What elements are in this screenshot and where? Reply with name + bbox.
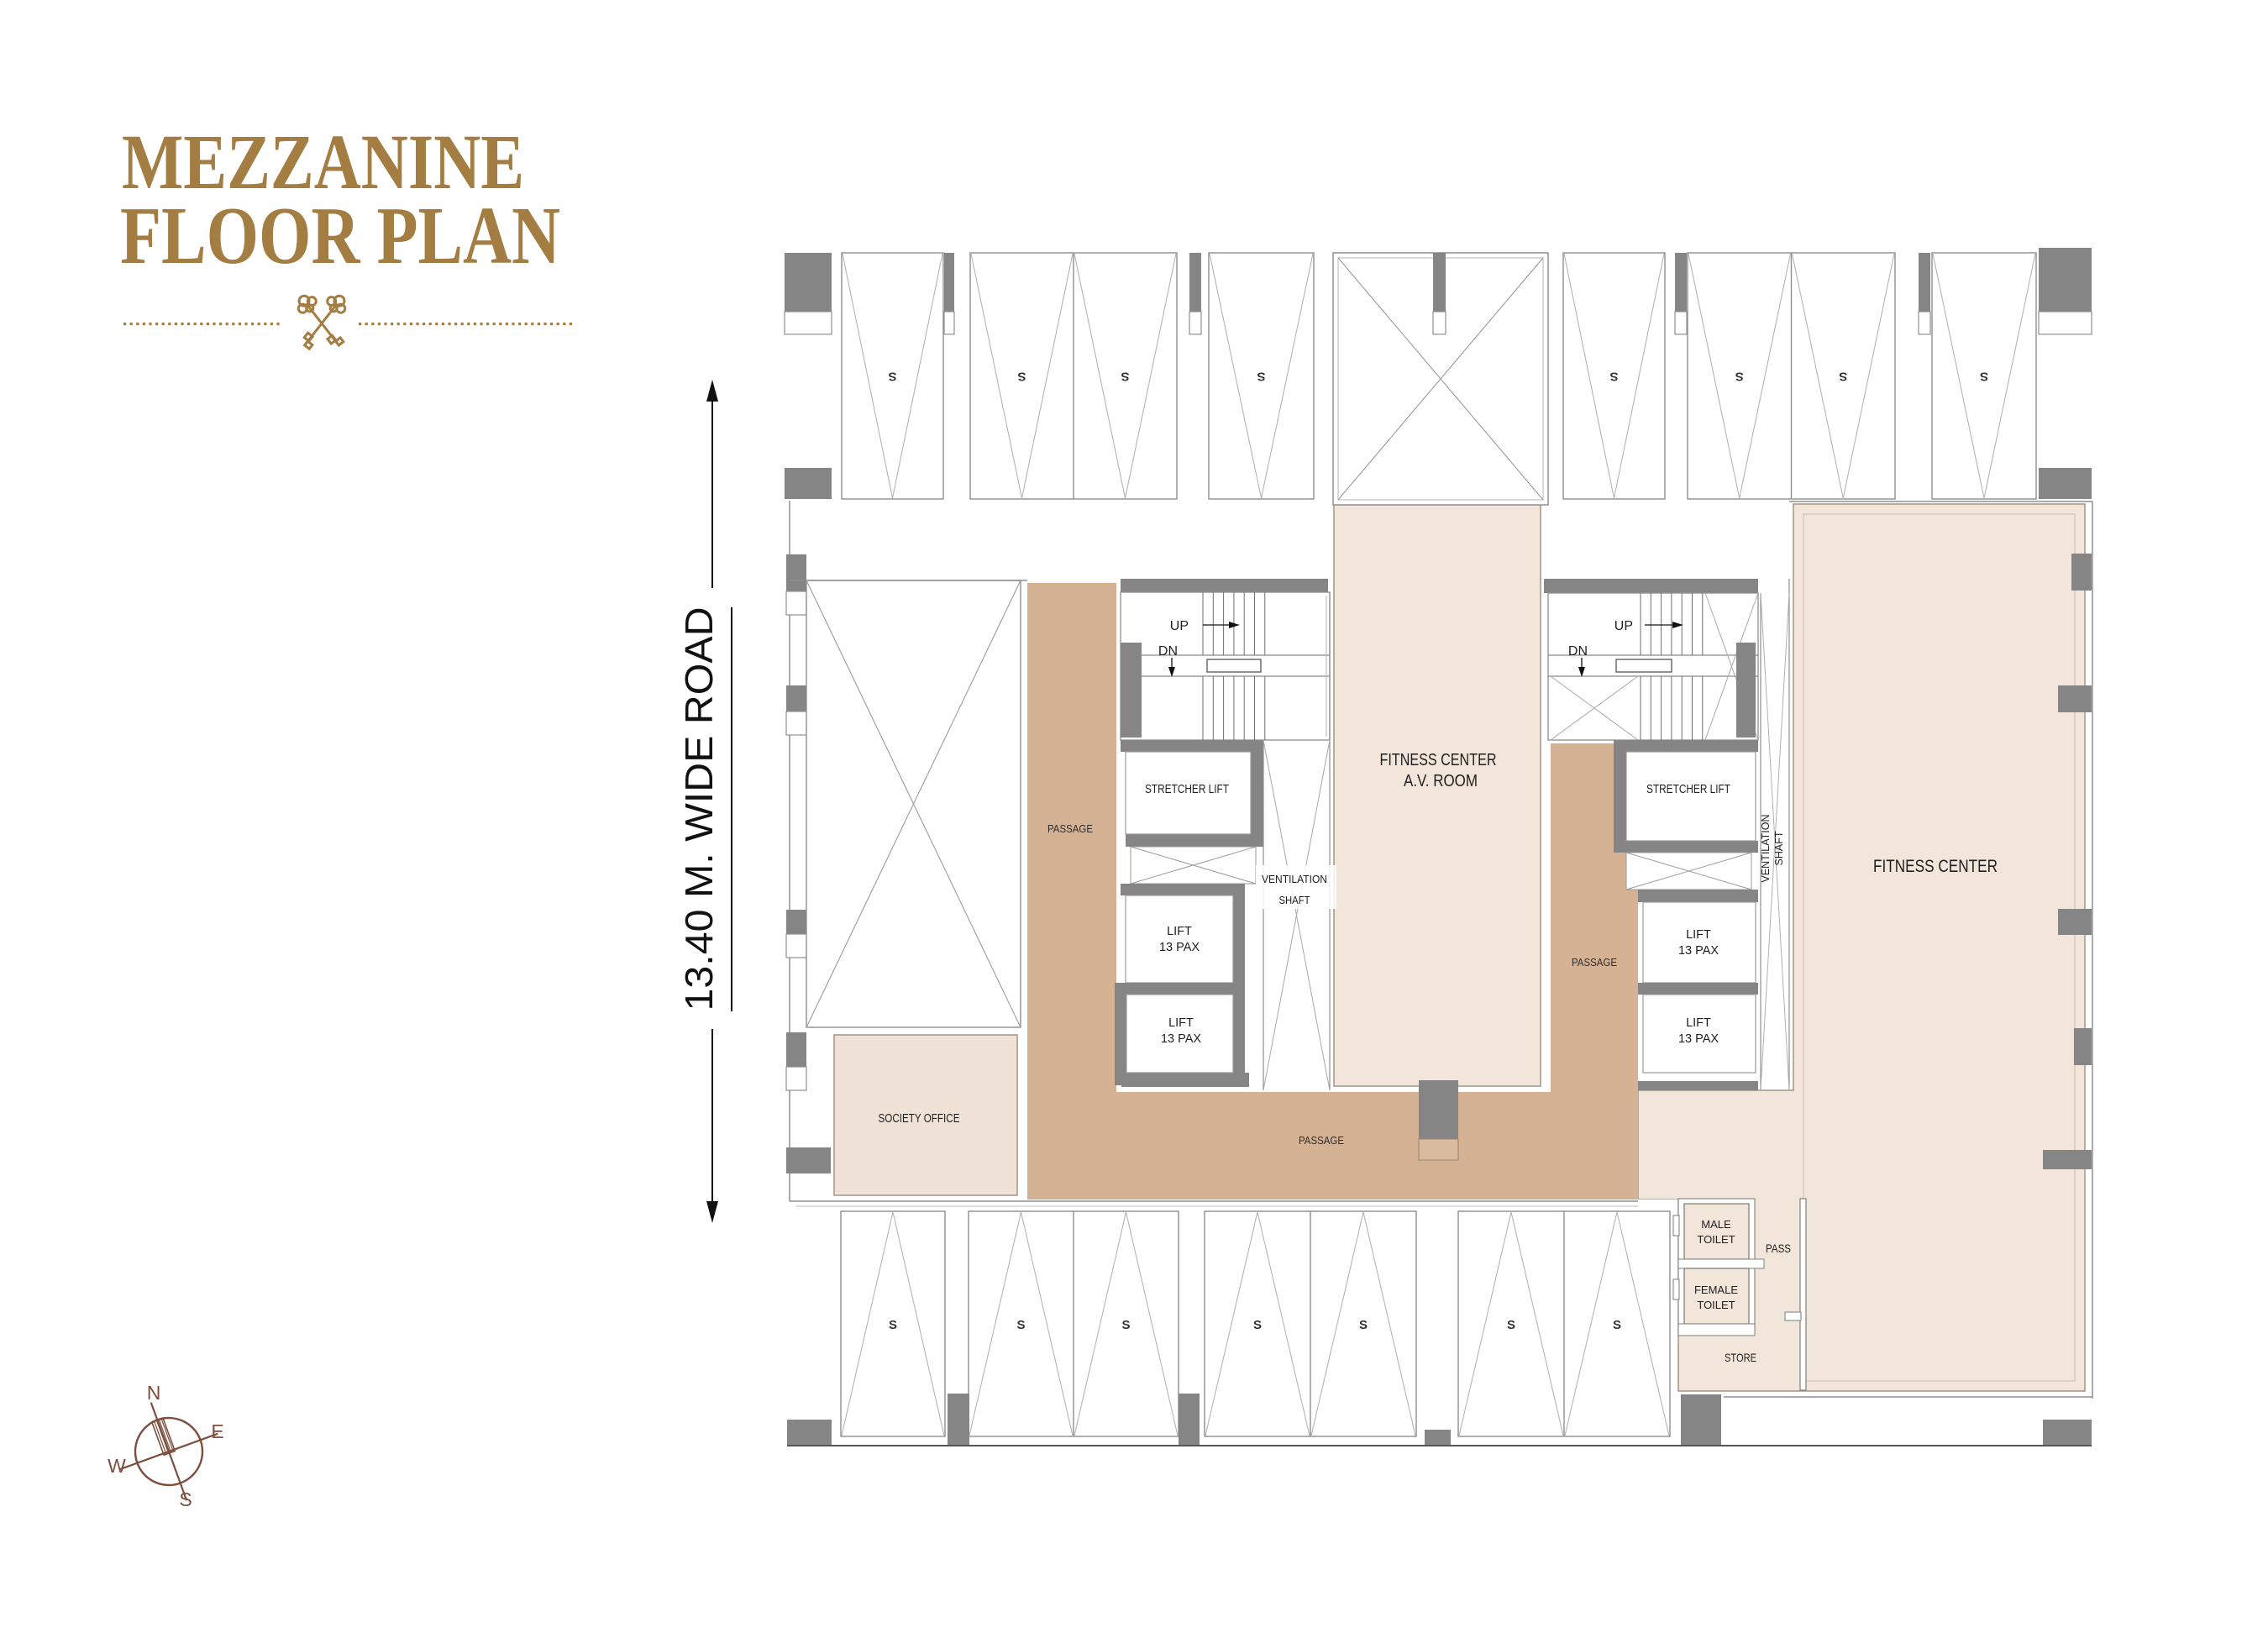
svg-text:S: S: [889, 1318, 897, 1332]
svg-text:LIFT: LIFT: [1686, 1016, 1711, 1030]
svg-text:STRETCHER LIFT: STRETCHER LIFT: [1646, 783, 1730, 796]
svg-text:S: S: [1507, 1318, 1515, 1332]
svg-text:FITNESS CENTER: FITNESS CENTER: [1873, 857, 1998, 876]
svg-text:PASSAGE: PASSAGE: [1572, 956, 1617, 969]
svg-text:S: S: [1609, 370, 1618, 384]
svg-text:VENTILATION: VENTILATION: [1760, 814, 1772, 882]
svg-text:FEMALE: FEMALE: [1694, 1284, 1738, 1296]
svg-text:A.V. ROOM: A.V. ROOM: [1404, 771, 1478, 790]
svg-text:UP: UP: [1614, 619, 1633, 633]
svg-text:PASSAGE: PASSAGE: [1299, 1134, 1344, 1147]
svg-text:E: E: [211, 1420, 223, 1442]
svg-text:FLOOR PLAN: FLOOR PLAN: [120, 191, 560, 281]
svg-text:13.40 M. WIDE ROAD: 13.40 M. WIDE ROAD: [677, 607, 721, 1011]
svg-text:DN: DN: [1158, 644, 1178, 659]
svg-text:S: S: [888, 370, 896, 384]
svg-text:LIFT: LIFT: [1167, 925, 1192, 938]
svg-text:S: S: [179, 1488, 192, 1510]
svg-text:MALE: MALE: [1701, 1218, 1731, 1231]
svg-text:S: S: [1839, 370, 1847, 384]
svg-text:S: S: [1017, 370, 1026, 384]
svg-text:S: S: [1121, 1318, 1130, 1332]
svg-text:S: S: [1980, 370, 1988, 384]
svg-text:UP: UP: [1170, 619, 1189, 633]
svg-text:W: W: [108, 1455, 126, 1477]
svg-text:PASSAGE: PASSAGE: [1047, 822, 1093, 835]
svg-text:S: S: [1253, 1318, 1262, 1332]
svg-text:LIFT: LIFT: [1168, 1016, 1194, 1030]
svg-text:13 PAX: 13 PAX: [1678, 944, 1719, 958]
svg-text:13 PAX: 13 PAX: [1159, 941, 1200, 954]
svg-text:LIFT: LIFT: [1686, 928, 1711, 942]
svg-text:TOILET: TOILET: [1697, 1233, 1735, 1246]
svg-text:S: S: [1359, 1318, 1368, 1332]
svg-text:TOILET: TOILET: [1697, 1299, 1735, 1311]
svg-text:STORE: STORE: [1725, 1351, 1756, 1364]
svg-text:STRETCHER LIFT: STRETCHER LIFT: [1145, 783, 1229, 796]
svg-text:S: S: [1016, 1318, 1025, 1332]
svg-text:S: S: [1121, 370, 1129, 384]
svg-text:S: S: [1735, 370, 1744, 384]
svg-text:SHAFT: SHAFT: [1773, 831, 1785, 865]
svg-text:N: N: [147, 1382, 161, 1404]
svg-text:DN: DN: [1568, 644, 1588, 659]
svg-text:S: S: [1613, 1318, 1621, 1332]
svg-text:SHAFT: SHAFT: [1279, 894, 1310, 906]
svg-text:13 PAX: 13 PAX: [1678, 1032, 1719, 1046]
svg-text:VENTILATION: VENTILATION: [1262, 873, 1327, 885]
svg-text:13 PAX: 13 PAX: [1161, 1032, 1201, 1046]
svg-text:SOCIETY OFFICE: SOCIETY OFFICE: [879, 1111, 960, 1126]
svg-text:S: S: [1257, 370, 1265, 384]
svg-text:PASS: PASS: [1766, 1242, 1791, 1255]
svg-text:FITNESS CENTER: FITNESS CENTER: [1380, 750, 1497, 769]
